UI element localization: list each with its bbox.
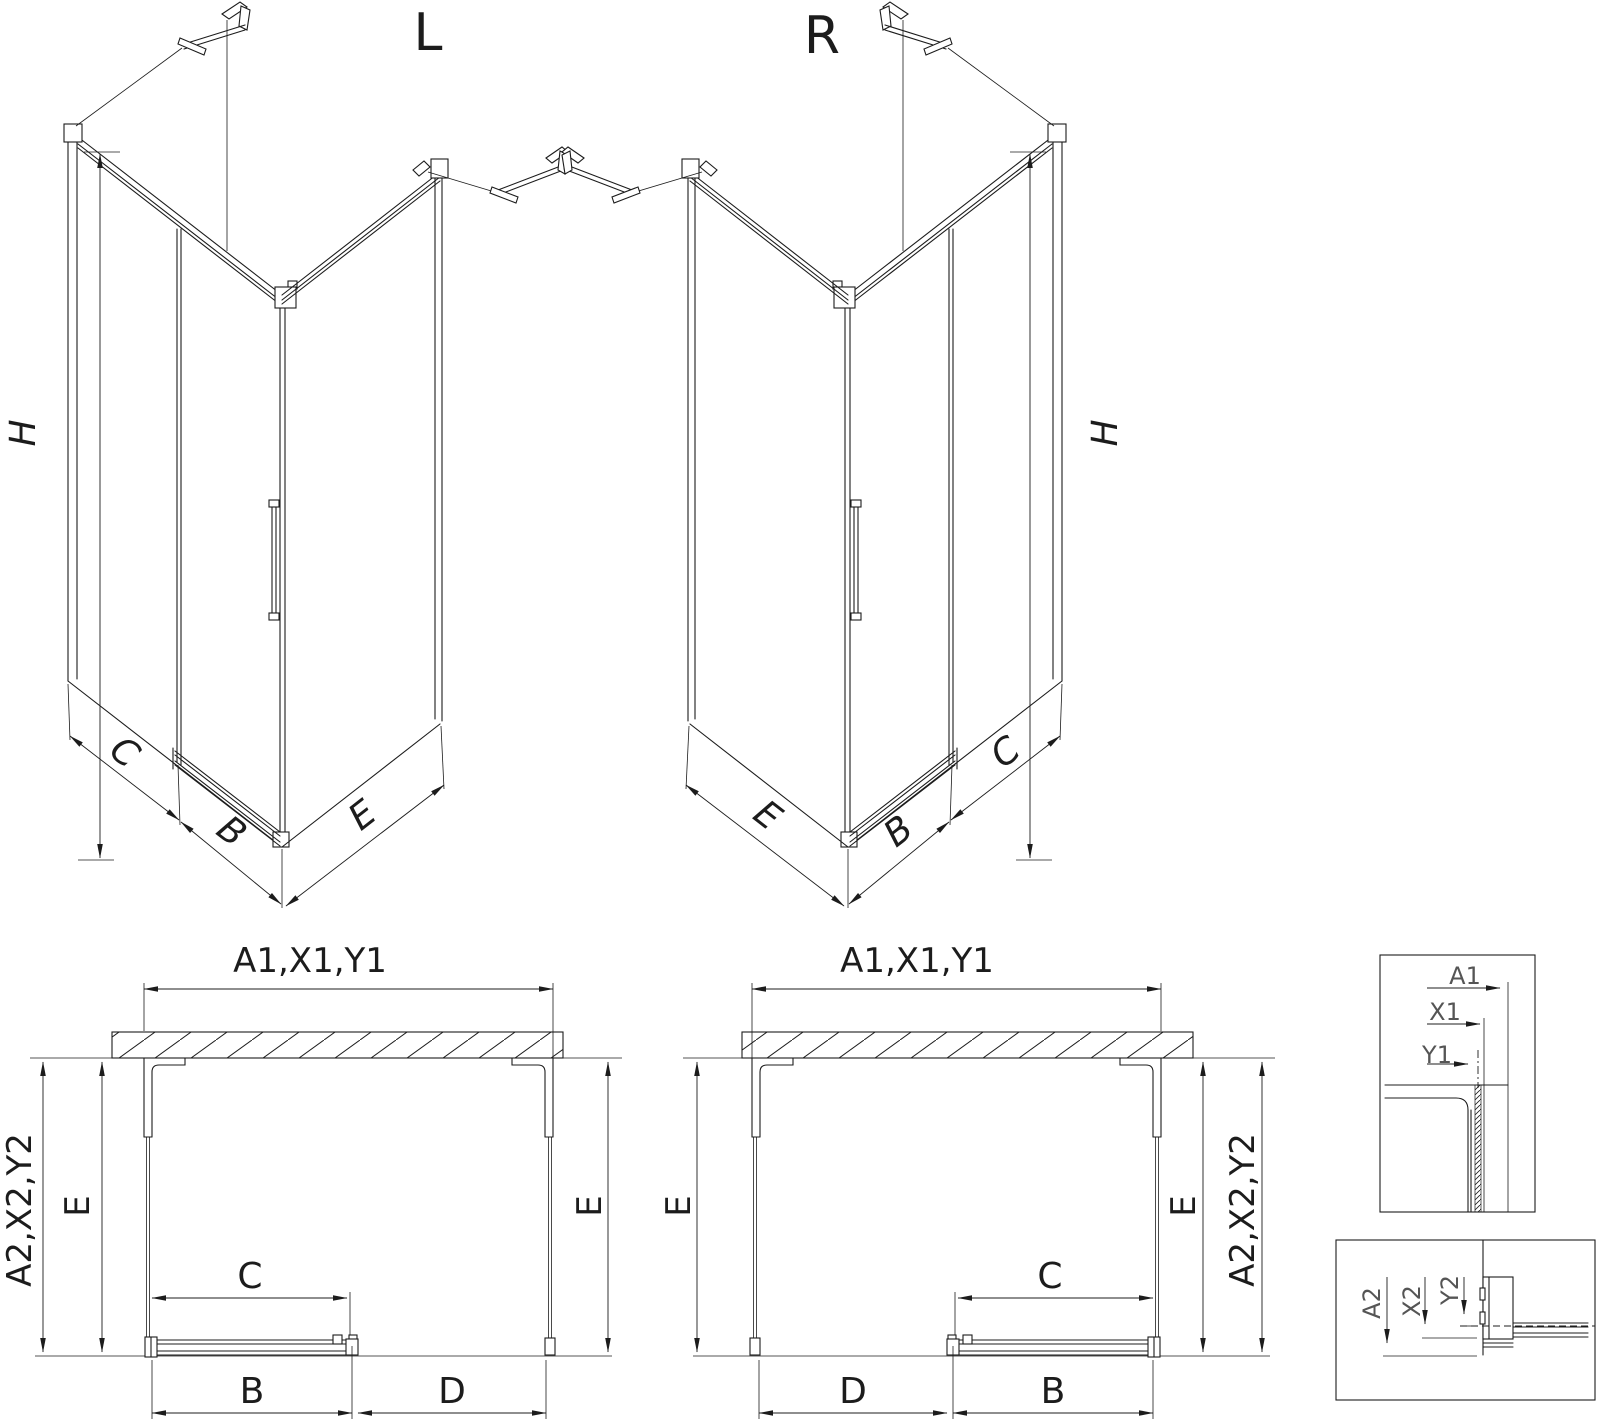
plan-right-dim-d: D bbox=[839, 1374, 867, 1410]
iso-left-view bbox=[64, 2, 568, 908]
detail-depth-box bbox=[1336, 1240, 1595, 1400]
detail-width-box bbox=[1380, 955, 1535, 1212]
iso-right-view bbox=[562, 2, 1066, 908]
drawing-sheet: L H C B E R H C B E A1,X1,Y1 A2,X2,Y2 E … bbox=[0, 0, 1600, 1423]
plan-right-dim-width: A1,X1,Y1 bbox=[840, 944, 994, 978]
plan-left-dim-b: B bbox=[240, 1374, 265, 1410]
detail-width-dim-x1: X1 bbox=[1429, 1000, 1461, 1024]
plan-left-dim-c: C bbox=[237, 1259, 262, 1295]
wall-hatch-left bbox=[112, 1032, 563, 1058]
iso-left-dim-height: H bbox=[6, 419, 42, 446]
plan-right-dim-e-left: E bbox=[662, 1195, 696, 1216]
plan-left-dim-e-right: E bbox=[573, 1195, 607, 1216]
detail-depth-dim-x2: X2 bbox=[1400, 1285, 1424, 1317]
plan-right-dim-b: B bbox=[1041, 1374, 1066, 1410]
plan-right-dim-c: C bbox=[1037, 1259, 1062, 1295]
detail-width-dim-y1: Y1 bbox=[1422, 1043, 1452, 1067]
wall-hatch-right bbox=[742, 1032, 1193, 1058]
technical-drawing bbox=[0, 0, 1600, 1423]
iso-left-title: L bbox=[414, 7, 443, 59]
plan-left-dim-d: D bbox=[438, 1374, 466, 1410]
plan-left-dim-e-left: E bbox=[61, 1195, 95, 1216]
iso-right-title: R bbox=[804, 10, 840, 62]
detail-width-dim-a1: A1 bbox=[1449, 964, 1481, 988]
detail-depth-dim-a2: A2 bbox=[1360, 1287, 1384, 1319]
plan-right-dim-e-right: E bbox=[1167, 1195, 1201, 1216]
detail-depth-dim-y2: Y2 bbox=[1438, 1275, 1462, 1305]
plan-left-dim-width: A1,X1,Y1 bbox=[233, 944, 387, 978]
plan-right-dim-depth: A2,X2,Y2 bbox=[1226, 1133, 1260, 1287]
iso-right-dim-height: H bbox=[1088, 419, 1124, 446]
plan-left-dim-depth: A2,X2,Y2 bbox=[3, 1133, 37, 1287]
